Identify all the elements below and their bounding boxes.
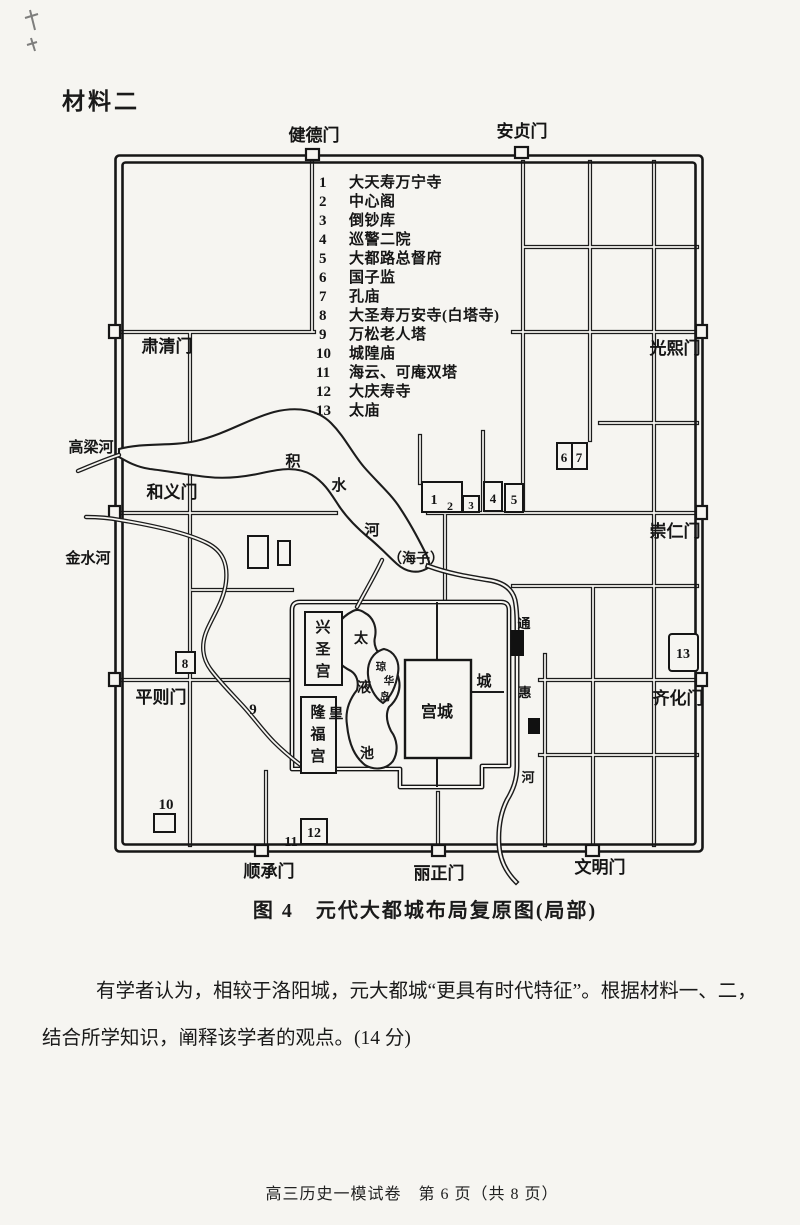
legend-no: 13 bbox=[316, 403, 331, 419]
legend-no: 4 bbox=[319, 232, 327, 248]
label-longfu-char: 隆 bbox=[310, 703, 326, 721]
gate-label-anzhenmen: 安贞门 bbox=[497, 121, 548, 141]
map-legend: 1 大天寿万宁寺 2 中心阁 3 倒钞库 4 巡警二院 5 大都路总督府 6 国… bbox=[316, 173, 500, 419]
question-line-1: 有学者认为，相较于洛阳城，元大都城“更具有时代特征”。根据材料一、二， bbox=[42, 968, 792, 1015]
label-qionghua-char: 岛 bbox=[380, 690, 391, 703]
legend-no: 7 bbox=[319, 289, 327, 305]
label-haizi: （海子） bbox=[388, 550, 444, 567]
legend-label: 万松老人塔 bbox=[348, 325, 427, 343]
legend-no: 1 bbox=[319, 175, 327, 191]
legend-no: 3 bbox=[319, 213, 327, 229]
gate-label-jiandemen: 健德门 bbox=[289, 125, 340, 145]
canal-bridge-mark bbox=[511, 630, 524, 656]
legend-no: 9 bbox=[319, 327, 327, 343]
exam-page: 材料二 bbox=[0, 0, 800, 1225]
legend-no: 8 bbox=[319, 308, 327, 324]
label-gaoliang-river: 高梁河 bbox=[68, 438, 113, 456]
scan-artifact bbox=[25, 10, 38, 51]
marker-8: 8 bbox=[182, 656, 189, 671]
gate-label-shunchengmen: 顺承门 bbox=[244, 861, 295, 881]
label-huangcheng-char: 城 bbox=[476, 672, 491, 690]
label-longfu-char: 宫 bbox=[310, 747, 325, 765]
label-tonghui-char: 通 bbox=[517, 616, 530, 631]
legend-label: 大天寿万宁寺 bbox=[349, 173, 442, 191]
legend-label: 中心阁 bbox=[349, 192, 396, 210]
marker-10: 10 bbox=[159, 797, 174, 813]
label-tonghui-char: 河 bbox=[521, 770, 534, 785]
question-line-2: 结合所学知识，阐释该学者的观点。(14 分) bbox=[42, 1015, 792, 1062]
marker-7: 7 bbox=[576, 450, 583, 465]
marker-9: 9 bbox=[249, 702, 257, 718]
legend-no: 10 bbox=[316, 346, 331, 362]
label-gongcheng: 宫城 bbox=[421, 702, 453, 721]
canal-bridge-mark bbox=[528, 718, 540, 734]
jinshui-river bbox=[86, 517, 302, 766]
gate-label-chongrenmen: 崇仁门 bbox=[650, 521, 701, 541]
label-jishui-char: 水 bbox=[331, 476, 347, 494]
legend-label: 国子监 bbox=[349, 268, 396, 286]
marker-5: 5 bbox=[511, 492, 518, 507]
building-block bbox=[248, 536, 268, 568]
legend-no: 2 bbox=[319, 194, 327, 210]
legend-no: 12 bbox=[316, 384, 331, 400]
gate-label-pingzemen: 平则门 bbox=[136, 687, 187, 707]
label-xingsheng-char: 圣 bbox=[314, 641, 331, 658]
marker-11: 11 bbox=[284, 835, 297, 850]
marker-13: 13 bbox=[676, 647, 690, 662]
label-tonghui-char: 惠 bbox=[518, 685, 531, 700]
marker-2: 2 bbox=[447, 499, 453, 513]
label-qionghua-char: 琼 bbox=[376, 660, 387, 673]
gate-labels: 健德门 安贞门 肃清门 和义门 平则门 光熙门 崇仁门 齐化门 顺承门 丽正门 … bbox=[136, 121, 704, 883]
legend-label: 巡警二院 bbox=[349, 230, 411, 248]
gate-label-guangximen: 光熙门 bbox=[649, 338, 701, 358]
legend-label: 城隍庙 bbox=[349, 344, 396, 362]
label-huangcheng-char: 皇 bbox=[328, 704, 343, 722]
label-longfu-char: 福 bbox=[309, 725, 325, 743]
marker-1: 1 bbox=[431, 493, 438, 508]
question-paragraph: 有学者认为，相较于洛阳城，元大都城“更具有时代特征”。根据材料一、二， 结合所学… bbox=[42, 968, 792, 1062]
label-xingsheng-char: 兴 bbox=[315, 619, 330, 636]
legend-no: 6 bbox=[319, 270, 327, 286]
marker-4: 4 bbox=[490, 491, 497, 506]
page-footer: 高三历史一模试卷 第 6 页（共 8 页） bbox=[12, 1180, 800, 1204]
gate-label-qihuamen: 齐化门 bbox=[653, 688, 704, 708]
label-xingsheng-char: 宫 bbox=[315, 662, 330, 680]
label-taiye-char: 液 bbox=[357, 679, 372, 696]
legend-label: 海云、可庵双塔 bbox=[349, 363, 458, 381]
gate-label-wenmingmen: 文明门 bbox=[575, 857, 626, 877]
figure-caption: 图 4 元代大都城布局复原图(局部) bbox=[25, 894, 800, 923]
label-jishui-char: 河 bbox=[364, 521, 379, 539]
legend-label: 倒钞库 bbox=[348, 211, 396, 229]
label-taiye-char: 太 bbox=[354, 630, 369, 647]
label-taiye-char: 池 bbox=[360, 745, 374, 762]
legend-label: 大都路总督府 bbox=[349, 249, 442, 267]
label-qionghua-char: 华 bbox=[384, 674, 395, 687]
legend-label: 孔庙 bbox=[349, 287, 380, 305]
marker-3: 3 bbox=[468, 500, 474, 512]
legend-label: 大圣寿万安寺(白塔寺) bbox=[349, 306, 500, 324]
legend-no: 5 bbox=[319, 251, 327, 267]
legend-label: 太庙 bbox=[349, 401, 380, 419]
gaoliang-river bbox=[78, 455, 119, 471]
legend-no: 11 bbox=[316, 365, 330, 381]
label-jinshui-river: 金水河 bbox=[64, 549, 110, 567]
label-jishui-char: 积 bbox=[285, 452, 300, 470]
legend-label: 大庆寿寺 bbox=[349, 382, 411, 400]
dadu-city-map: 1 2 3 4 5 6 7 8 9 10 11 12 13 1 大天寿万宁 bbox=[0, 0, 800, 960]
marker-12: 12 bbox=[307, 826, 321, 841]
gate-label-suqingmen: 肃清门 bbox=[142, 336, 193, 356]
marker-6: 6 bbox=[561, 450, 568, 465]
gate-label-lizhengmen: 丽正门 bbox=[414, 863, 465, 883]
gate-label-heyimen: 和义门 bbox=[147, 482, 198, 502]
building-block bbox=[278, 541, 290, 565]
